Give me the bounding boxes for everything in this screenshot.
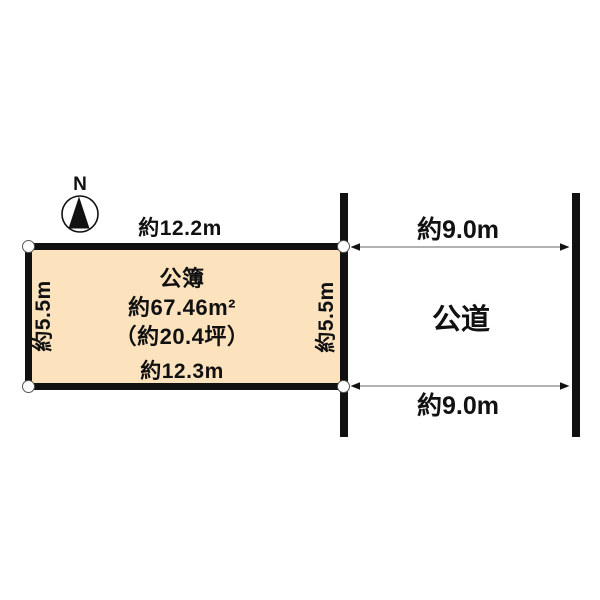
- plot-top-edge-dimension: 約12.2m: [80, 218, 280, 240]
- corner-marker-top-left: [22, 240, 35, 253]
- plot-area-tsubo: （約20.4坪）: [32, 322, 332, 351]
- arrowhead-right-bottom-icon: [560, 382, 570, 390]
- arrowhead-right-top-icon: [560, 243, 570, 251]
- compass-north-label: N: [60, 175, 100, 195]
- land-plot-diagram: N 約12.2m 約12.3m 約5.5m 約5.5m 公簿 約67.46m² …: [0, 0, 600, 600]
- plot-left-edge-dimension: 約5.5m: [33, 266, 55, 366]
- corner-marker-bottom-left: [22, 380, 35, 393]
- road-top-width-label: 約9.0m: [378, 217, 538, 243]
- arrowhead-left-bottom-icon: [351, 382, 361, 390]
- road-bottom-width-label: 約9.0m: [378, 393, 538, 419]
- plot-area-sqm: 約67.46m²: [32, 293, 332, 322]
- plot-area-text: 公簿 約67.46m² （約20.4坪）: [32, 264, 332, 351]
- plot-right-edge-dimension: 約5.5m: [316, 267, 338, 367]
- plot-bottom-edge-dimension: 約12.3m: [82, 361, 282, 383]
- road-name-label: 公道: [401, 305, 521, 335]
- arrowhead-left-top-icon: [351, 243, 361, 251]
- corner-marker-bottom-right: [337, 380, 350, 393]
- corner-marker-top-right: [337, 240, 350, 253]
- plot-registry-label: 公簿: [32, 264, 332, 293]
